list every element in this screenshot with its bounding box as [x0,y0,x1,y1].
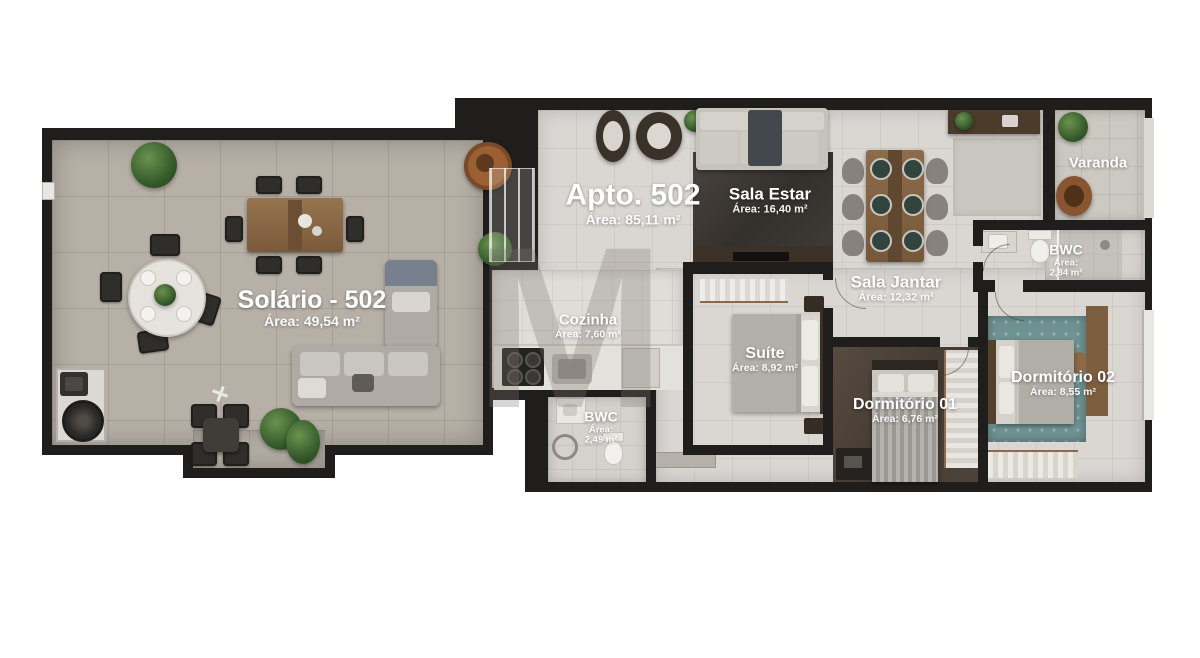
dormitorio-01-name: Dormitório 01 [853,396,957,414]
chair [346,216,364,242]
toilet-icon [1030,239,1050,263]
barbecue-grill [62,400,104,442]
plate [902,158,924,180]
dormitorio-02-name: Dormitório 02 [1011,369,1115,387]
chair [100,272,122,302]
burner [507,369,523,385]
laptop-icon [844,456,862,468]
plate [870,194,892,216]
pillow [352,374,374,392]
sink-basin [558,359,586,379]
shower-drain [1100,240,1110,250]
suite-area: Área: 8,92 m² [732,363,798,375]
sliding-glass-door [489,168,535,262]
pillow [802,320,818,360]
wall-bwc-social-top [973,220,1152,230]
sala-estar-label: Sala Estar Área: 16,40 m² [729,184,811,215]
bwc-servico-area-value: 2,49 m² [584,436,617,447]
plate [902,194,924,216]
unit-name: Apto. 502 [565,178,700,212]
dining-chair [926,230,948,256]
wall-suite-east-b [823,308,833,455]
sofa-blanket [385,260,437,286]
bwc-social-area-value: 2,84 m² [1049,269,1082,280]
bwc-servico-name: BWC [584,410,617,426]
solario-label: Solário - 502 Área: 49,54 m² [238,286,387,330]
dormitorio-01-area: Área: 6,76 m² [853,414,957,426]
sala-jantar-name: Sala Jantar [851,272,942,291]
varanda-name: Varanda [1069,156,1127,173]
bwc-servico-label: BWC Área: 2,49 m² [584,410,617,447]
wall-bwc-social-west-b [973,262,983,292]
wall-suite-east-a [823,262,833,280]
tv-icon [733,252,789,261]
chair [296,176,322,194]
sofa-cushion [780,132,818,164]
dormitorio-02-area: Área: 8,55 m² [1011,387,1115,399]
solario-lounge-table [203,418,239,452]
pillow [878,374,904,392]
wall-suite-top [683,262,833,274]
bed-headboard [872,360,938,370]
sofa-cushion [700,132,738,164]
unit-area: Área: 85,11 m² [565,212,700,228]
dining-chair [842,194,864,220]
pillow [908,374,934,392]
sofa-cushion [392,292,430,312]
sofa-cushion [344,352,384,376]
floor-plan: M Solário - 502 Área: 49,54 m² Apto. 502… [0,0,1200,658]
sala-estar-name: Sala Estar [729,184,811,203]
wall-dorm01-top-a [833,337,940,347]
nightstand [804,418,824,434]
dining-chair [842,230,864,256]
plant-icon [1058,112,1088,142]
plant-icon [955,112,973,130]
bowl [312,226,322,236]
chair [256,256,282,274]
suite-name: Suíte [732,345,798,363]
sala-jantar-label: Sala Jantar Área: 12,32 m² [851,272,942,303]
plate [140,270,156,286]
chair [150,234,180,256]
plate [176,306,192,322]
dormitorio-01-label: Dormitório 01 Área: 6,76 m² [853,396,957,426]
dining-chair [926,158,948,184]
chair [296,256,322,274]
burner [525,369,541,385]
chair [225,216,243,242]
plate [298,214,312,228]
sala-jantar-area: Área: 12,32 m² [851,291,942,303]
varanda-label: Varanda [1069,156,1127,173]
plate [870,158,892,180]
suite-label: Suíte Área: 8,92 m² [732,345,798,375]
sofa-cushion [300,352,340,376]
wall-suite-bottom [683,445,833,455]
plate [176,270,192,286]
pillow [298,378,326,398]
dormitorio-02-label: Dormitório 02 Área: 8,55 m² [1011,369,1115,399]
dormitorio-02-wardrobe [988,450,1078,478]
bwc-social-label: BWC Área: 2,84 m² [1049,243,1082,280]
nightstand [804,296,824,312]
wall-bwc-servico-east [646,390,656,482]
suite-wardrobe [700,279,788,303]
wall-varanda [1043,104,1055,230]
cozinha-area: Área: 7,60 m² [555,330,621,342]
sala-estar-area: Área: 16,40 m² [729,203,811,215]
wall-dorm01-dorm02 [978,292,988,492]
burner [507,352,523,368]
sink-basin [563,404,577,416]
wall-dorm02-top-b [1023,280,1152,292]
bwc-social-name: BWC [1049,243,1082,259]
solario-area: Área: 49,54 m² [238,314,387,330]
rattan-chair-cushion [1064,185,1084,207]
dining-chair [842,158,864,184]
centerpiece-plant-icon [154,284,176,306]
varanda-railing [1142,118,1154,218]
shower-icon [552,434,578,460]
unit-label: Apto. 502 Área: 85,11 m² [565,178,700,227]
refrigerator [622,348,660,388]
sofa-throw [748,110,782,166]
plate [140,306,156,322]
plant-icon [286,420,320,464]
plant-icon [131,142,177,188]
dormitorio-02-window [1142,310,1154,420]
chair [256,176,282,194]
armchair-cushion [603,121,623,151]
cozinha-label: Cozinha Área: 7,60 m² [555,313,621,342]
plate [870,230,892,252]
plate [902,230,924,252]
pillow [802,366,818,406]
dining-chair [926,194,948,220]
burner [525,352,541,368]
solario-name: Solário - 502 [238,286,387,314]
solario-window [42,182,55,200]
sofa-cushion [388,352,428,376]
sala-jantar-rug [953,138,1041,216]
decor-item [1002,115,1018,127]
dormitorio-02-desk [1086,306,1108,416]
armchair-cushion [647,123,671,149]
sink-basin [65,377,83,391]
cozinha-name: Cozinha [555,313,621,330]
wall-suite-west [683,262,693,455]
